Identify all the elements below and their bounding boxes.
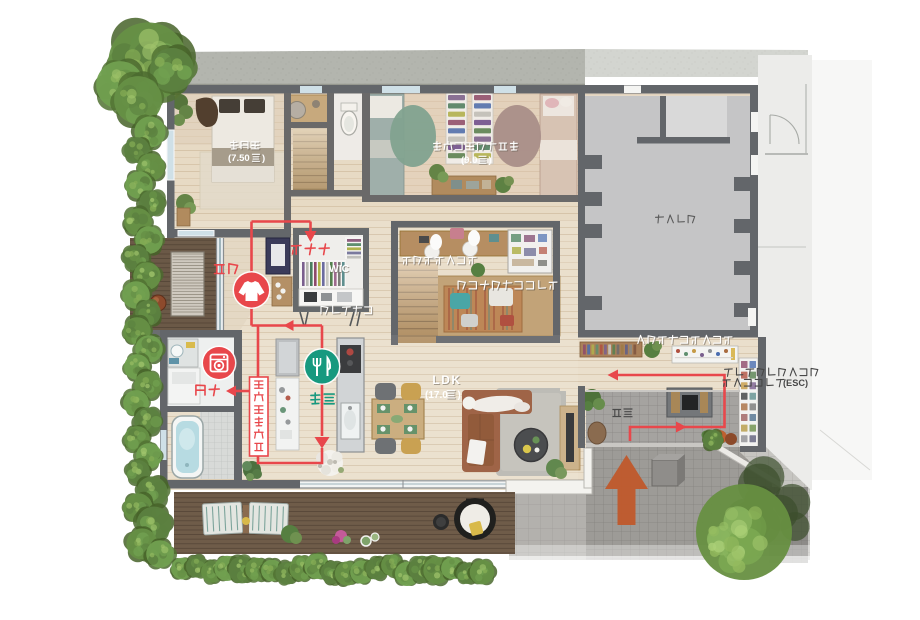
svg-text:): )	[262, 153, 265, 164]
svg-text:): )	[489, 155, 492, 166]
svg-text:(17.0: (17.0	[425, 390, 448, 401]
svg-text:LDK: LDK	[432, 373, 461, 387]
svg-text:WIC: WIC	[329, 263, 350, 275]
svg-text:(ESC): (ESC)	[783, 378, 808, 388]
svg-text:(7.50: (7.50	[228, 153, 250, 164]
svg-text:(9.0: (9.0	[461, 155, 477, 166]
svg-text:): )	[458, 390, 461, 401]
